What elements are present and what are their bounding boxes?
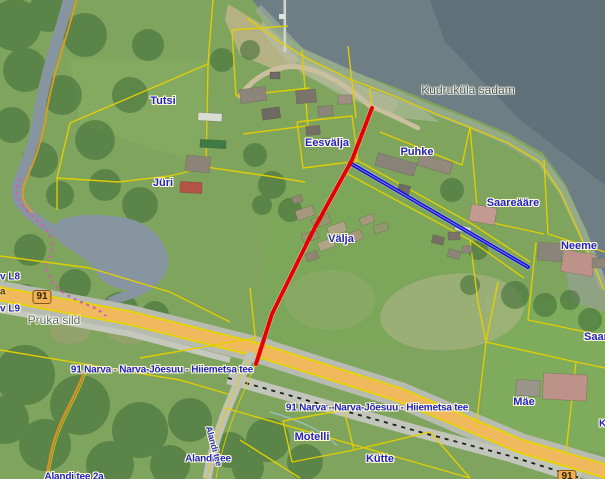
label-fragment-ditch-l9: v L9 bbox=[0, 304, 20, 315]
label-place-puhke: Puhke bbox=[400, 146, 433, 158]
label-fragment-ditch-l8: v L8 bbox=[0, 272, 20, 283]
label-alandi-tee-2a: Alandi tee 2a bbox=[44, 472, 103, 479]
pier-hut bbox=[279, 14, 285, 19]
label-alandi-tee: Alandi tee bbox=[185, 454, 231, 465]
label-place-neeme: Neeme bbox=[561, 240, 597, 252]
label-place-motelli: Motelli bbox=[295, 431, 330, 443]
road-number-badge-91-west: 91 bbox=[32, 290, 51, 304]
label-fragment-right-edge: K bbox=[599, 419, 605, 430]
map-canvas[interactable]: Kudruküla sadam Tutsi Jüri Eesvälja Puhk… bbox=[0, 0, 605, 479]
label-place-saareaare: Saareääre bbox=[487, 197, 540, 209]
label-place-juri: Jüri bbox=[153, 177, 173, 189]
label-place-saare-clipped: Saare bbox=[584, 331, 605, 343]
label-place-valja: Välja bbox=[328, 233, 354, 245]
label-place-kutte: Kütte bbox=[366, 453, 394, 465]
label-place-eesvalja: Eesvälja bbox=[305, 137, 349, 149]
road-number-badge-91-east: 91 bbox=[557, 470, 576, 479]
label-highway-east: 91 Narva - Narva-Jõesuu - Hiiemetsa tee bbox=[286, 403, 468, 414]
label-place-mae: Mäe bbox=[513, 396, 534, 408]
label-place-tutsi: Tutsi bbox=[150, 95, 175, 107]
label-harbor: Kudruküla sadam bbox=[421, 83, 514, 97]
label-highway-west: 91 Narva - Narva-Jõesuu - Hiiemetsa tee bbox=[71, 365, 253, 376]
label-bridge-pruka-sild: Pruka sild bbox=[28, 313, 81, 327]
label-fragment-onroad-a: a bbox=[0, 287, 6, 298]
